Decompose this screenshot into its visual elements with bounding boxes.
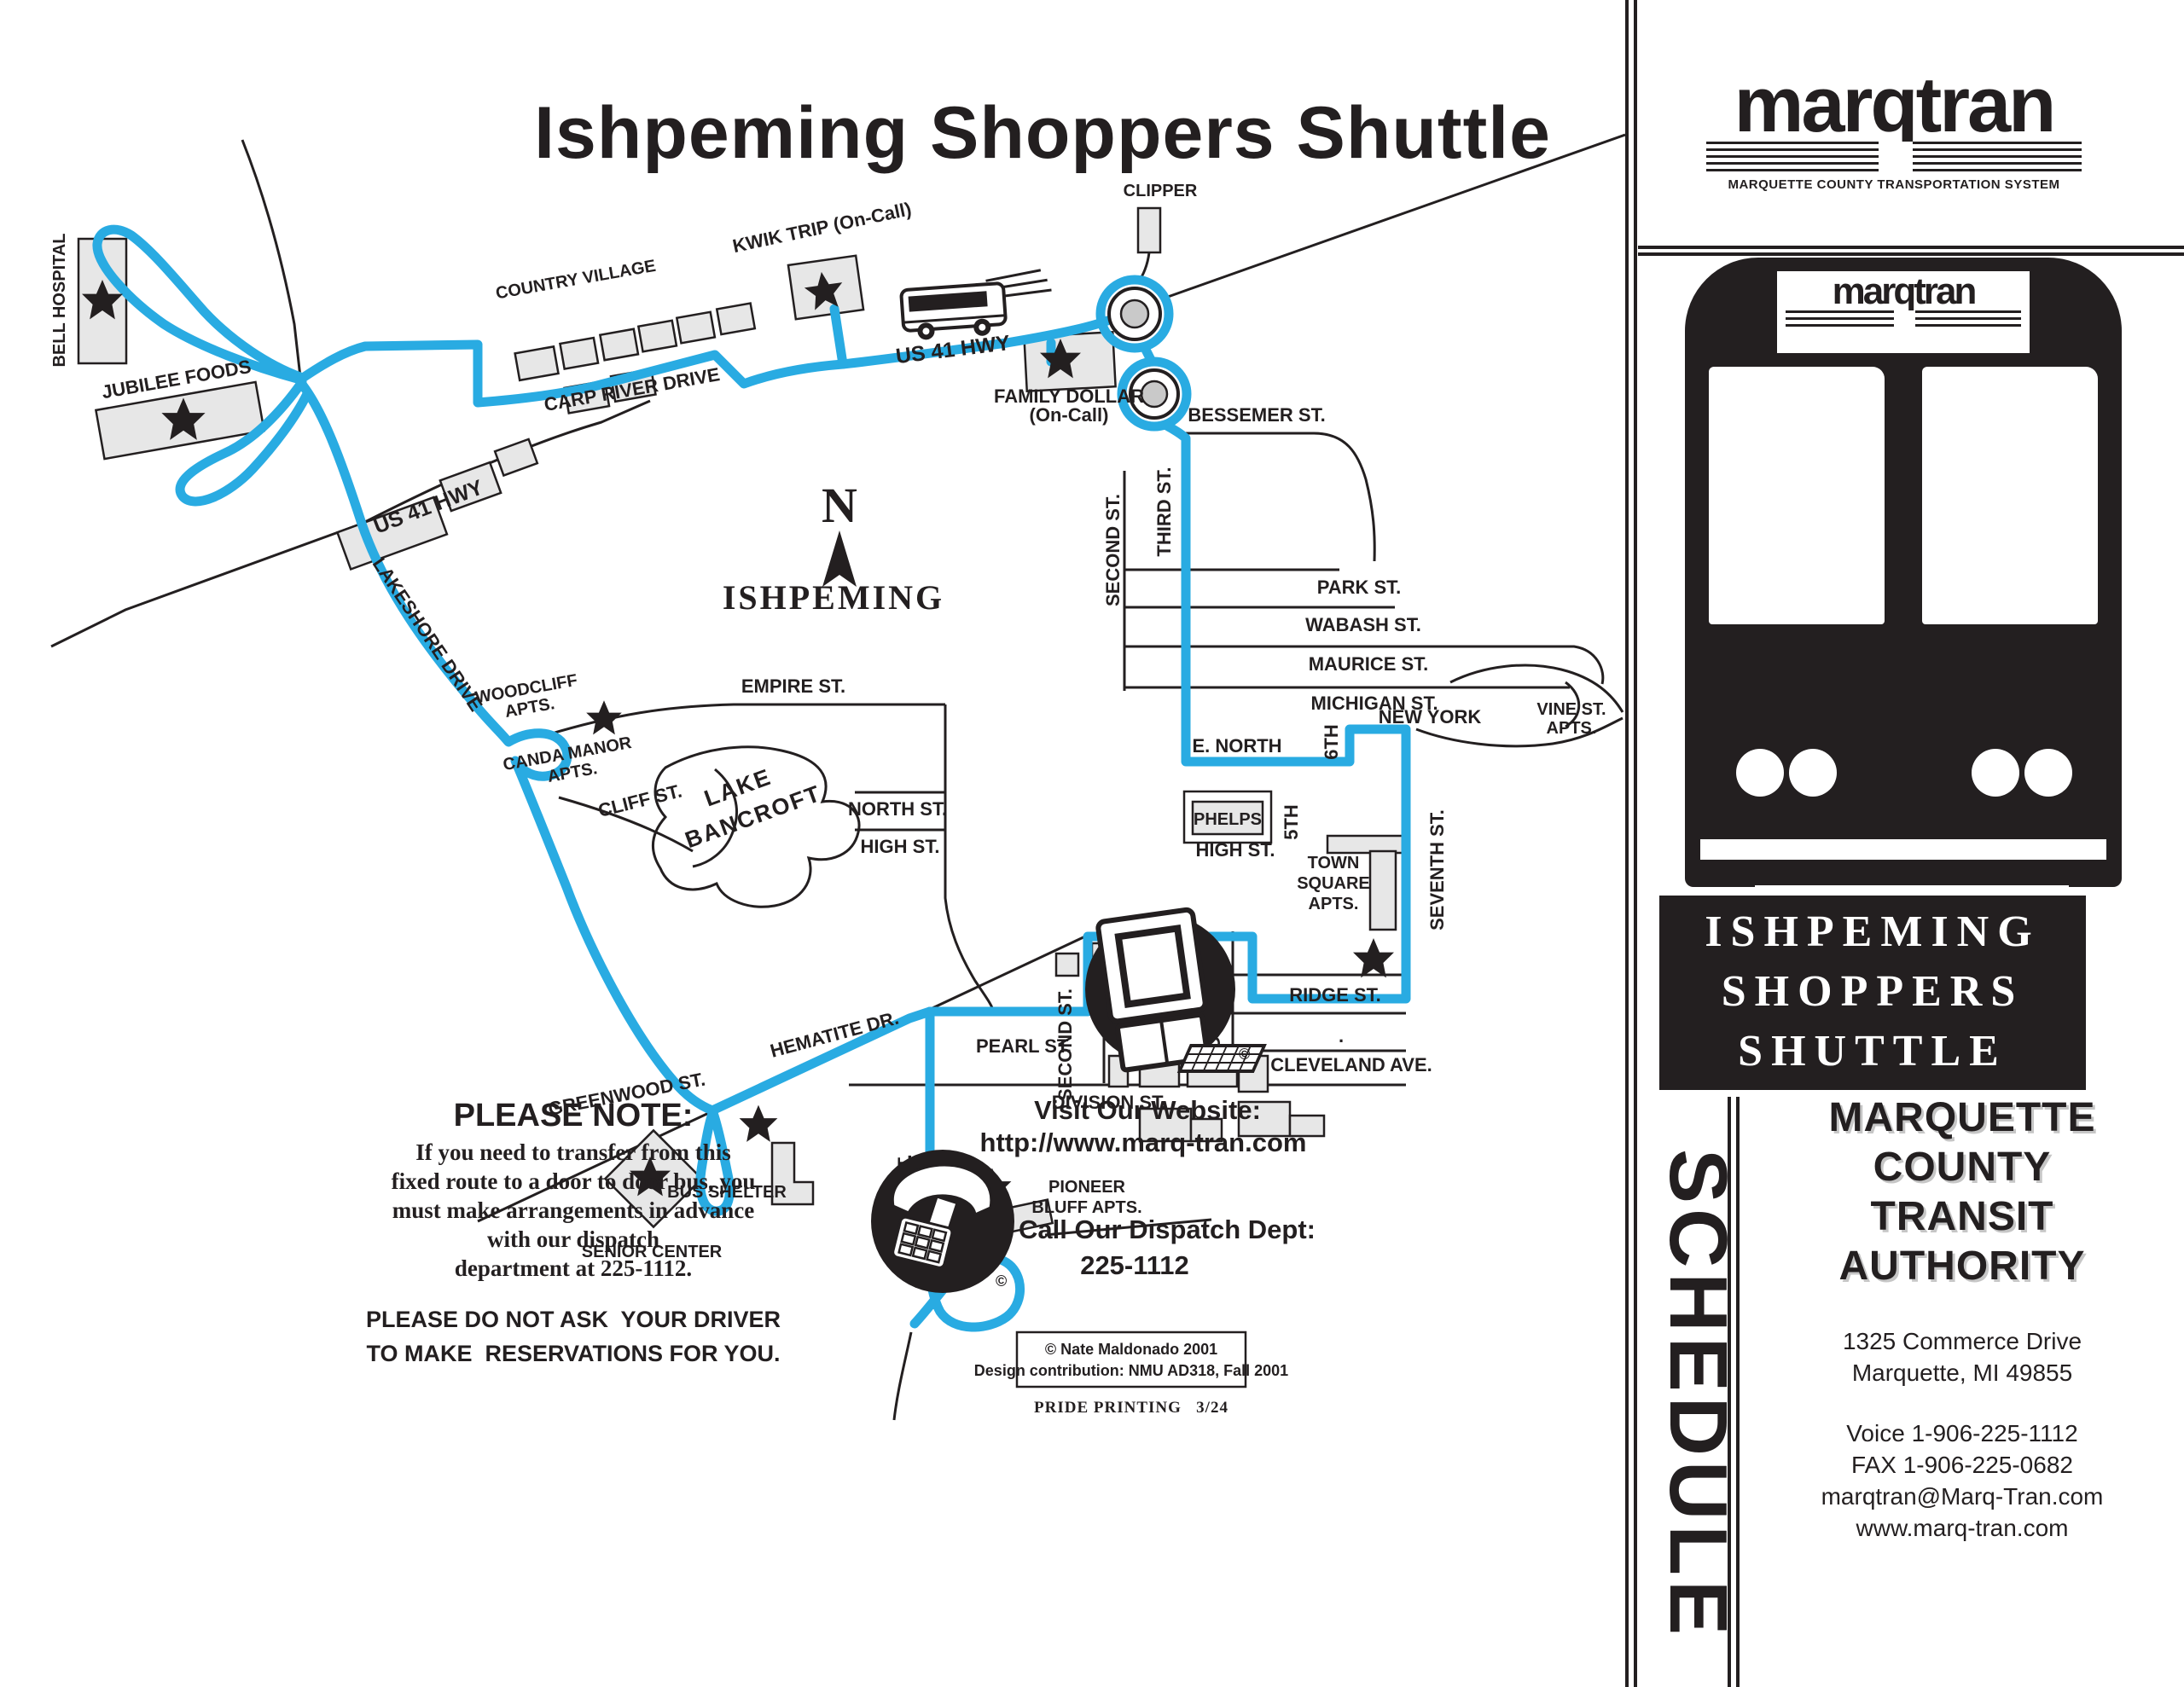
second-st-building [1056, 954, 1078, 976]
phone-copyright-mark: © [996, 1272, 1007, 1290]
wabash-label: WABASH ST. [1305, 614, 1421, 635]
shuttle-name-banner: ISHPEMING SHOPPERS SHUTTLE [1659, 896, 2086, 1090]
empire-label: EMPIRE ST. [741, 675, 845, 697]
shuttle-name-line-1: ISHPEMING [1659, 902, 2086, 962]
bus-shelter-star-icon [740, 1105, 778, 1142]
page-title: Ishpeming Shoppers Shuttle [534, 92, 1551, 174]
authority-line-3: TRANSIT [1757, 1192, 2167, 1242]
panel-divider-top [1638, 246, 2184, 256]
city-label: ISHPEMING [723, 578, 944, 617]
authority-email: marqtran@Marq-Tran.com [1757, 1481, 2167, 1512]
bus-headlight-1 [1736, 749, 1784, 797]
park-label: PARK ST. [1317, 577, 1402, 598]
pioneer-label-1: PIONEER [1048, 1178, 1126, 1197]
high1-label: HIGH ST. [861, 836, 940, 857]
note-line-1: If you need to transfer from this [415, 1139, 730, 1165]
bus-headlight-4 [2024, 749, 2072, 797]
panel-divider-left [1625, 0, 1637, 1687]
website-url: http://www.marq-tran.com [980, 1128, 1307, 1157]
family-dollar-label-2: (On-Call) [1030, 404, 1109, 426]
shuttle-name-line-2: SHOPPERS [1659, 962, 2086, 1022]
town-square-star-icon [1353, 938, 1394, 977]
clipper-building [1138, 208, 1160, 252]
town-label-2: SQUARE [1297, 874, 1370, 893]
marqtran-tagline: MARQUETTE COUNTY TRANSPORTATION SYSTEM [1706, 177, 2082, 192]
high2-label: HIGH ST. [1196, 839, 1275, 861]
bessemer-label: BESSEMER ST. [1188, 404, 1325, 426]
town-square-building-2 [1370, 851, 1396, 930]
note-warning-2: TO MAKE RESERVATIONS FOR YOU. [366, 1341, 780, 1366]
authority-web: www.marq-tran.com [1757, 1512, 2167, 1544]
map-labels: BELL HOSPITAL JUBILEE FOODS COUNTRY VILL… [50, 182, 1606, 1261]
bus-headlight-3 [1972, 749, 2019, 797]
marqtran-speedlines-icon [1706, 142, 2082, 172]
pearl-label: PEARL ST. [976, 1035, 1072, 1057]
authority-line-2: COUNTY [1757, 1143, 2167, 1192]
route-map: Ishpeming Shoppers Shuttle [0, 0, 1625, 1687]
marqtran-logo: marqtran MARQUETTE COUNTY TRANSPORTATION… [1706, 68, 2082, 192]
dispatch-heading: Call Our Dispatch Dept: [1019, 1215, 1316, 1244]
north1-label: NORTH ST. [848, 798, 947, 820]
authority-address-2: Marquette, MI 49855 [1757, 1357, 2167, 1388]
credits-copyright: © Nate Maldonado 2001 [1045, 1341, 1217, 1358]
bus-illustration: marqtran [1685, 258, 2122, 887]
road-bessemer [1186, 433, 1374, 561]
compass-n-label: N [822, 478, 857, 533]
note-line-3: must make arrangements in advance [392, 1197, 754, 1223]
us41-east-label: US 41 HWY [894, 331, 1011, 368]
bus-bumper [1700, 839, 2106, 860]
bus-sign-speedlines-icon [1786, 310, 2021, 328]
lakeshore-label: LAKESHORE DRIVE [369, 554, 487, 715]
seventh-label: SEVENTH ST. [1426, 809, 1448, 930]
cleveland-label: CLEVELAND AVE. [1270, 1054, 1432, 1075]
note-line-2: fixed route to a door to door bus, you [392, 1168, 756, 1194]
note-heading: PLEASE NOTE: [454, 1098, 694, 1133]
route-bell-loop [97, 229, 300, 380]
brochure-page: Ishpeming Shoppers Shuttle [0, 0, 2184, 1687]
canda-star-icon [586, 700, 622, 734]
third-label: THIRD ST. [1153, 467, 1175, 556]
road-north-curve [242, 140, 300, 377]
bus-sign-logo-word: marqtran [1777, 273, 2030, 310]
authority-voice: Voice 1-906-225-1112 [1757, 1417, 2167, 1449]
road-pine-tail [894, 1332, 911, 1420]
road-northeast-vertical [945, 704, 993, 1010]
cliff-label: CLIFF ST. [596, 780, 684, 821]
route-bus-icon [900, 270, 1054, 341]
authority-block: MARQUETTE COUNTY TRANSIT AUTHORITY 1325 … [1757, 1093, 2167, 1544]
bell-hospital-label: BELL HOSPITAL [50, 233, 69, 367]
vine-label-1: VINE ST. [1536, 700, 1606, 719]
bus-windshield-left [1709, 367, 1885, 624]
bus-headlight-2 [1789, 749, 1837, 797]
town-label-1: TOWN [1308, 854, 1360, 872]
enorth-label: E. NORTH [1192, 735, 1281, 757]
country-village-label: COUNTRY VILLAGE [494, 257, 657, 304]
website-heading: Visit Our Website: [1034, 1095, 1261, 1125]
note-warning-1: PLEASE DO NOT ASK YOUR DRIVER [366, 1307, 781, 1332]
note-line-5: department at 225-1112. [455, 1255, 692, 1281]
authority-line-1: MARQUETTE [1757, 1093, 2167, 1143]
note-line-4: with our dispatch [487, 1226, 659, 1252]
credits-design: Design contribution: NMU AD318, Fall 200… [974, 1362, 1288, 1379]
cover-panel: marqtran MARQUETTE COUNTY TRANSPORTATION… [1625, 0, 2184, 1687]
newyork-label: NEW YORK [1379, 706, 1482, 728]
marqtran-logo-word: marqtran [1706, 68, 2082, 142]
stray-dot-label: . [1339, 1025, 1344, 1046]
bus-windshield-right [1922, 367, 2098, 624]
authority-fax: FAX 1-906-225-0682 [1757, 1449, 2167, 1481]
shuttle-name-line-3: SHUTTLE [1659, 1022, 2086, 1081]
fifth-label: 5TH [1281, 804, 1302, 840]
authority-address-1: 1325 Commerce Drive [1757, 1325, 2167, 1357]
route-kwiktrip-spur [834, 309, 843, 364]
dispatch-phone: 225-1112 [1080, 1250, 1189, 1280]
ridge-label: RIDGE ST. [1289, 984, 1381, 1006]
town-label-3: APTS. [1309, 895, 1359, 913]
computer-copyright-mark: © [1239, 1046, 1250, 1063]
clipper-label: CLIPPER [1124, 182, 1198, 200]
schedule-divider-right [1728, 1097, 1740, 1687]
maurice-label: MAURICE ST. [1309, 653, 1429, 675]
authority-line-4: AUTHORITY [1757, 1242, 2167, 1291]
kwik-trip-label: KWIK TRIP (On-Call) [730, 198, 913, 257]
second-north-label: SECOND ST. [1102, 494, 1124, 606]
phelps-label: PHELPS [1194, 810, 1262, 829]
vine-label-2: APTS. [1547, 719, 1597, 738]
phone-icon: © [871, 1150, 1014, 1293]
bus-sign: marqtran [1777, 271, 2030, 353]
sixth-label: 6TH [1321, 724, 1342, 760]
credits-printer: PRIDE PRINTING 3/24 [1034, 1399, 1228, 1417]
